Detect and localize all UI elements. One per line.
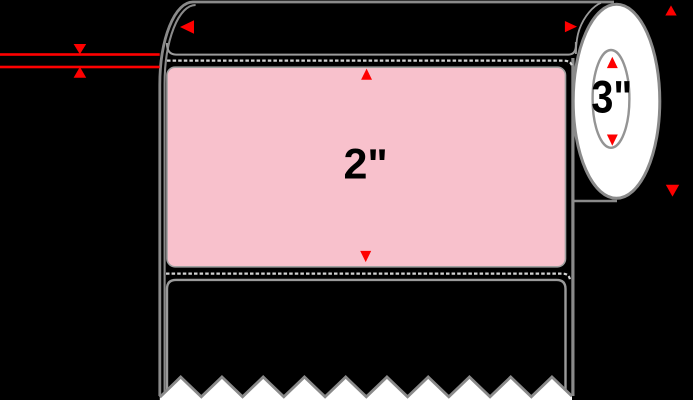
svg-text:2": 2"	[343, 140, 387, 188]
svg-text:3": 3"	[591, 72, 632, 123]
